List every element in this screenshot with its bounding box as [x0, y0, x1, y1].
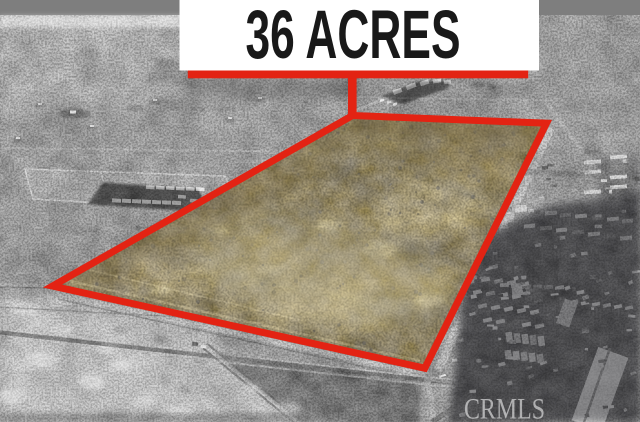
svg-text:CRMLS: CRMLS: [464, 393, 545, 422]
svg-text:36 ACRES: 36 ACRES: [246, 0, 461, 73]
